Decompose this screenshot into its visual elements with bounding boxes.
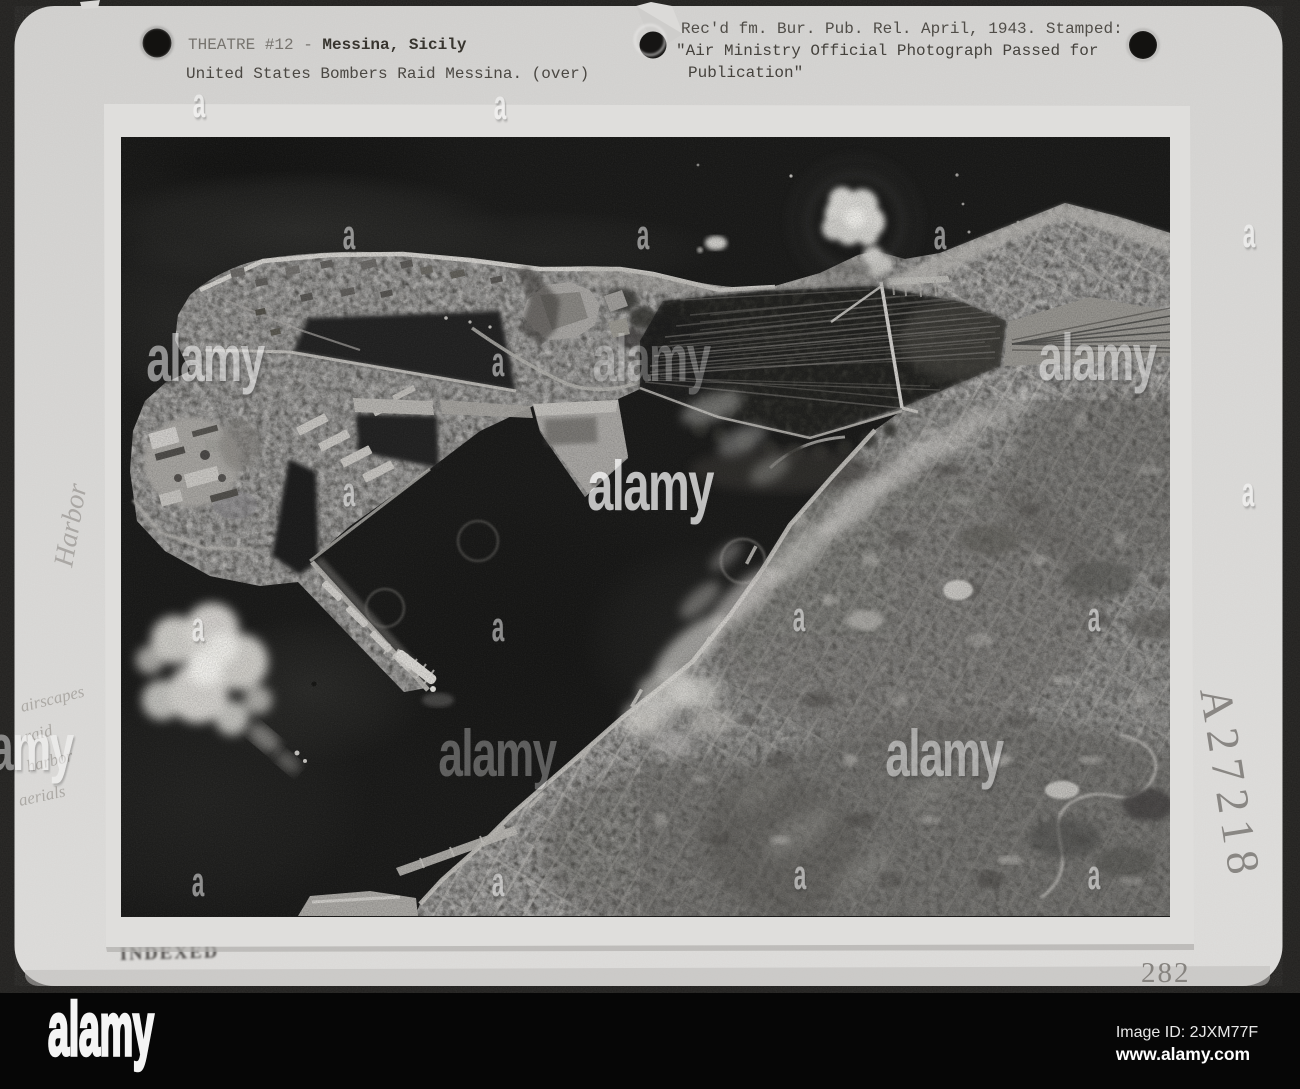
svg-text:a: a <box>192 605 205 651</box>
svg-text:a: a <box>492 860 505 906</box>
svg-text:a: a <box>193 81 206 127</box>
svg-text:a: a <box>492 340 505 386</box>
svg-text:a: a <box>794 853 807 899</box>
svg-text:Publication": Publication" <box>688 64 803 82</box>
svg-text:THEATRE #12 - Messina, Sicily: THEATRE #12 - Messina, Sicily <box>188 36 467 54</box>
svg-text:a: a <box>793 595 806 641</box>
svg-text:alamy: alamy <box>438 716 557 790</box>
svg-text:alamy: alamy <box>0 710 74 784</box>
svg-text:a: a <box>934 213 947 259</box>
svg-text:alamy: alamy <box>48 987 154 1072</box>
svg-text:a: a <box>343 213 356 259</box>
svg-text:a: a <box>1243 211 1256 257</box>
svg-text:alamy: alamy <box>885 716 1004 790</box>
svg-text:www.alamy.com: www.alamy.com <box>1115 1044 1250 1064</box>
svg-text:a: a <box>1242 470 1255 516</box>
svg-text:282: 282 <box>1141 957 1191 989</box>
svg-text:alamy: alamy <box>146 321 265 395</box>
svg-text:"Air Ministry Official Photogr: "Air Ministry Official Photograph Passed… <box>676 42 1098 60</box>
svg-text:alamy: alamy <box>592 321 711 395</box>
svg-text:a: a <box>492 605 505 651</box>
svg-text:a: a <box>637 213 650 259</box>
svg-text:a: a <box>343 470 356 516</box>
svg-text:a: a <box>192 860 205 906</box>
svg-text:alamy: alamy <box>1038 320 1157 394</box>
svg-text:a: a <box>1088 853 1101 899</box>
svg-text:a: a <box>1088 595 1101 641</box>
svg-text:United States Bombers Raid Mes: United States Bombers Raid Messina. (ove… <box>186 65 589 83</box>
svg-text:alamy: alamy <box>587 446 714 525</box>
svg-text:a: a <box>494 83 507 129</box>
svg-text:Rec'd fm. Bur. Pub. Rel. April: Rec'd fm. Bur. Pub. Rel. April, 1943. St… <box>681 20 1123 38</box>
svg-text:Image ID: 2JXM77F: Image ID: 2JXM77F <box>1116 1024 1259 1041</box>
